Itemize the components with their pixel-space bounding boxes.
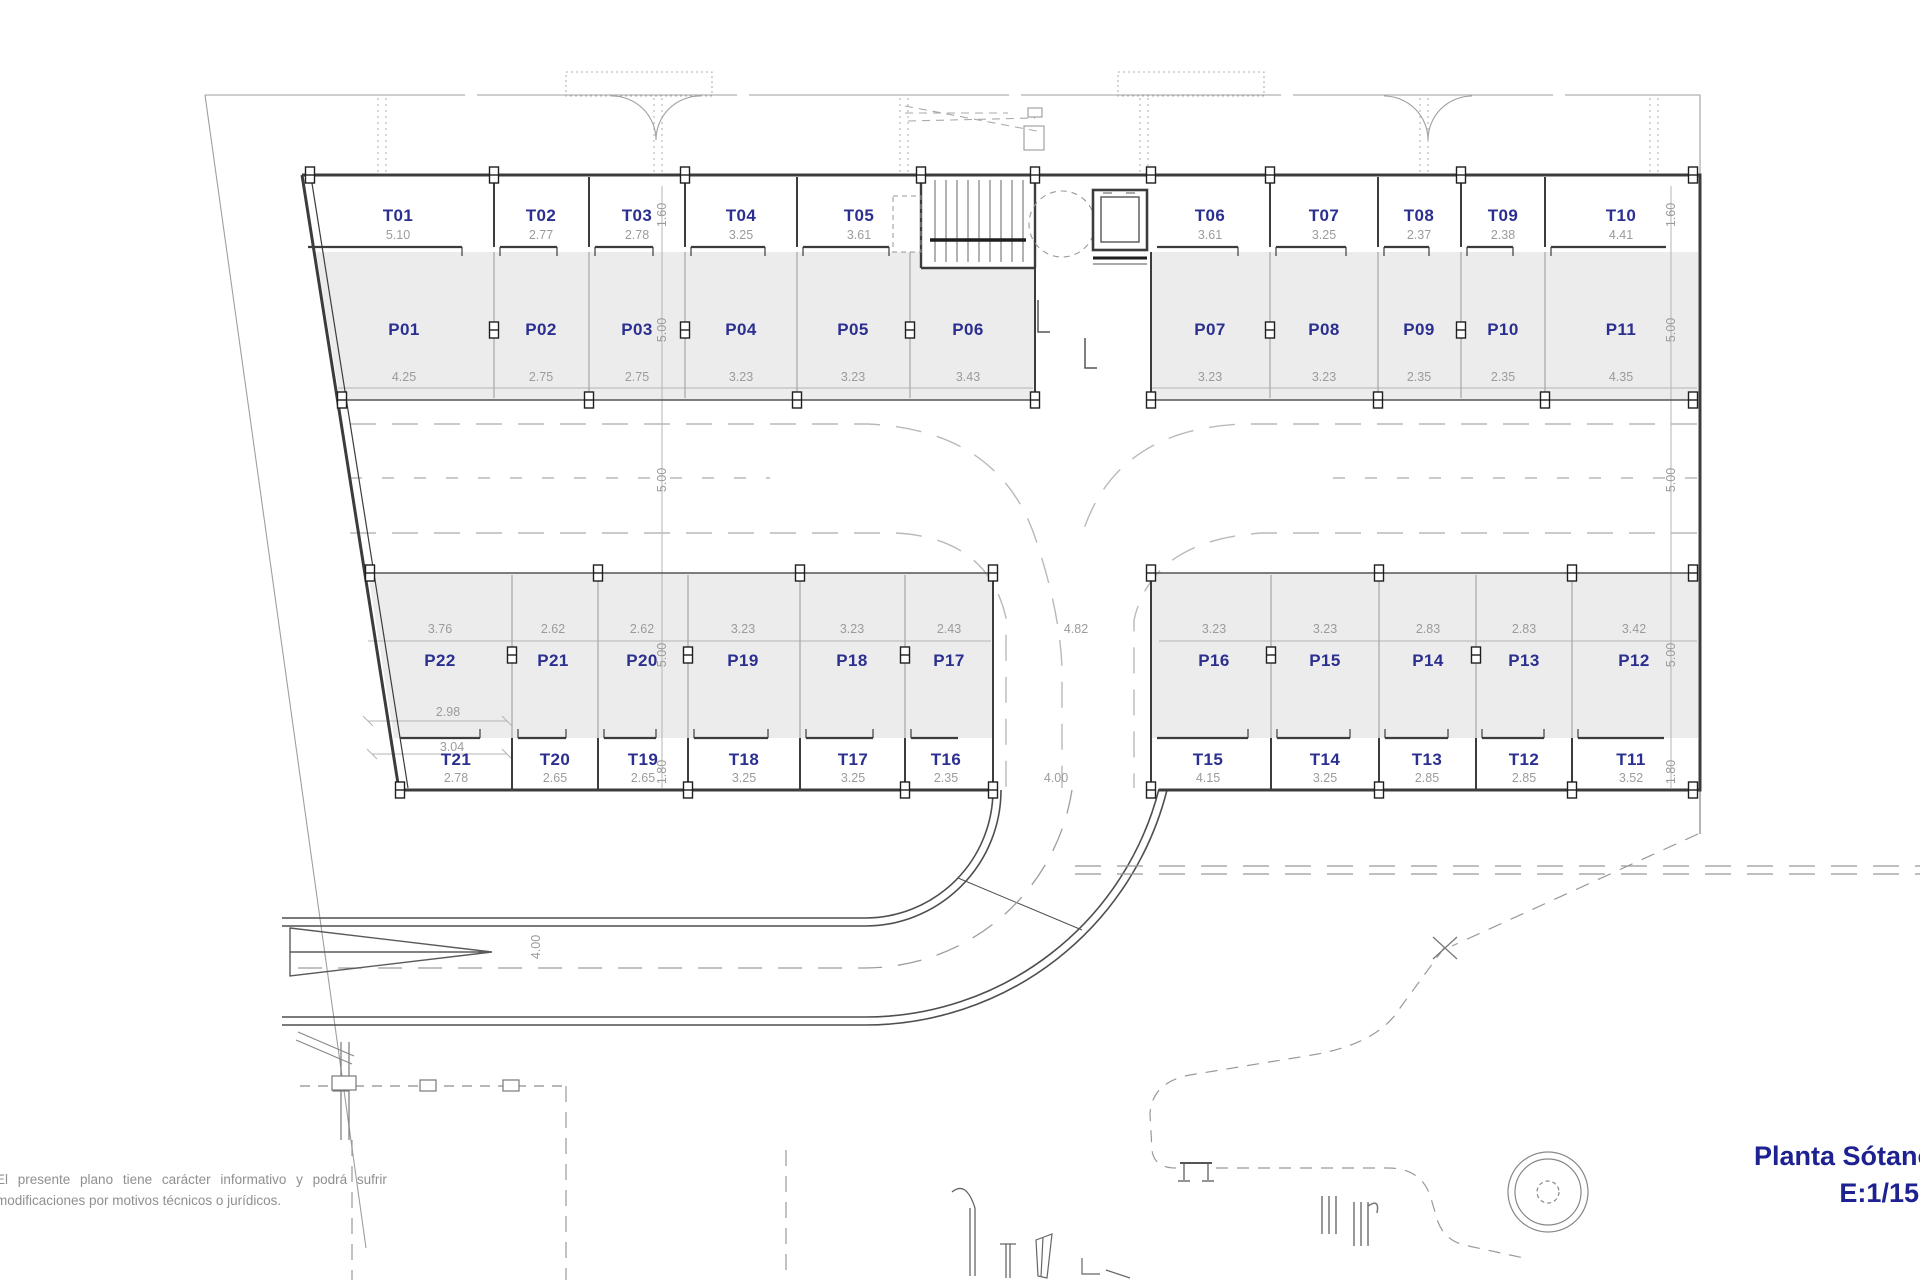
floor-plan-drawing	[0, 0, 1920, 1280]
site-details	[296, 834, 1920, 1280]
spiral-feature	[1508, 1152, 1588, 1232]
small-fixtures	[952, 1188, 1016, 1278]
door-swing-arcs	[612, 96, 1472, 140]
disclaimer-line1: El presente plano tiene carácter informa…	[0, 1170, 376, 1190]
tree-mark	[1433, 937, 1457, 959]
plan-title-name: Planta Sótano	[1754, 1138, 1920, 1175]
garden-outline	[1150, 948, 1524, 1258]
floor-plan-canvas: T015.10T022.77T032.78T043.25T053.61T063.…	[0, 0, 1920, 1280]
parking-stall-fills	[316, 175, 1698, 738]
exit-road	[282, 789, 1167, 1025]
plan-scale: E:1/150	[1754, 1175, 1920, 1212]
ramp-arrow	[290, 928, 492, 976]
grill-bars	[1322, 1196, 1378, 1246]
plan-title: Planta Sótano E:1/150	[1754, 1138, 1920, 1212]
disclaimer-line2: modificaciones por motivos técnicos o ju…	[0, 1191, 376, 1211]
